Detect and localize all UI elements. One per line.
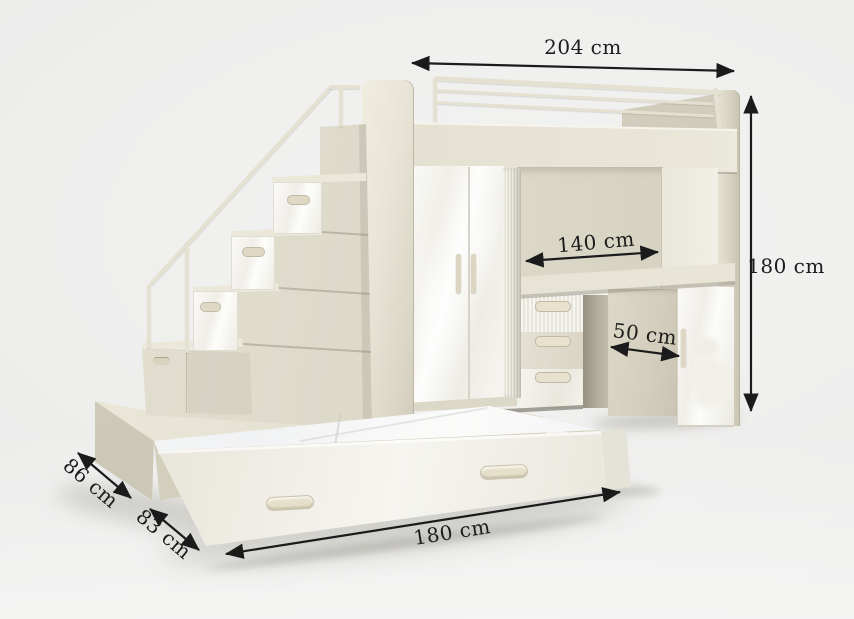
- cabinet-door-handle: [681, 329, 686, 368]
- wardrobe-handle-left: [456, 254, 461, 294]
- wardrobe-door-gap: [468, 167, 470, 403]
- dimension-label-right-height: 180 cm: [747, 254, 825, 278]
- fluted-side-strip: [503, 168, 521, 398]
- step-drawer-front: [273, 182, 322, 234]
- step-drawer-handle: [200, 302, 221, 312]
- wardrobe-handle-right: [471, 254, 476, 294]
- bottom-step-handle: [153, 357, 170, 365]
- pullout-bed-handle: [480, 464, 529, 480]
- wardrobe-doors: [406, 166, 504, 404]
- stair-handrail-top: [329, 85, 360, 89]
- drawer-handle: [535, 372, 571, 383]
- bottom-step-corner-line: [186, 351, 187, 413]
- desk-niche-back-panel: [517, 167, 663, 279]
- desk-cabinet-side: [608, 289, 677, 416]
- dimension-line-top-width: [412, 63, 734, 71]
- pullout-bed-handle: [266, 495, 315, 511]
- drawer-handle: [535, 301, 571, 312]
- dimension-label-top-width: 204 cm: [544, 35, 622, 59]
- stair-handrail-post: [185, 241, 189, 353]
- teddy-bear-reflection: [692, 356, 726, 408]
- guard-rail-post: [433, 78, 437, 125]
- desk-drawer-stack: [521, 294, 583, 408]
- desk-drawer-1: [521, 294, 583, 333]
- stair-handrail-post: [339, 87, 343, 127]
- step-drawer-front: [231, 236, 275, 290]
- step-drawer-front: [193, 291, 238, 351]
- desk-kneehole: [583, 295, 610, 408]
- drawer-handle: [535, 336, 571, 347]
- furniture-dimension-diagram: 204 cm 180 cm 140 cm 50 cm 86 cm 83 cm 1…: [0, 0, 854, 619]
- step-drawer-handle: [242, 247, 265, 257]
- stair-handrail-post: [147, 284, 151, 348]
- step-drawer-handle: [287, 195, 310, 205]
